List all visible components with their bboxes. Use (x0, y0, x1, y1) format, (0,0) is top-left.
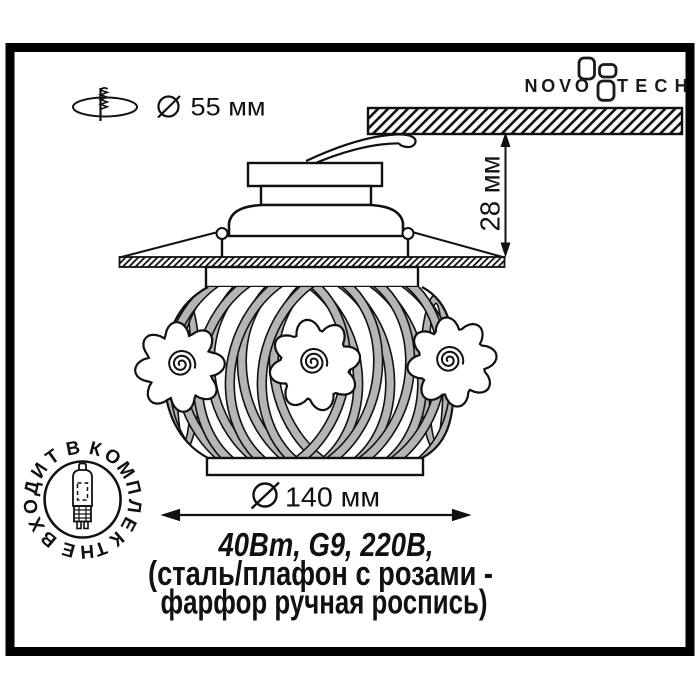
svg-text:TECH: TECH (617, 76, 695, 96)
svg-text:55 мм: 55 мм (191, 94, 266, 122)
svg-text:Л: Л (122, 498, 145, 514)
svg-text:140 мм: 140 мм (285, 482, 380, 513)
svg-text:фарфор ручная роспись): фарфор ручная роспись) (161, 584, 488, 622)
svg-text:28 мм: 28 мм (475, 156, 506, 232)
svg-text:О: О (20, 498, 43, 515)
